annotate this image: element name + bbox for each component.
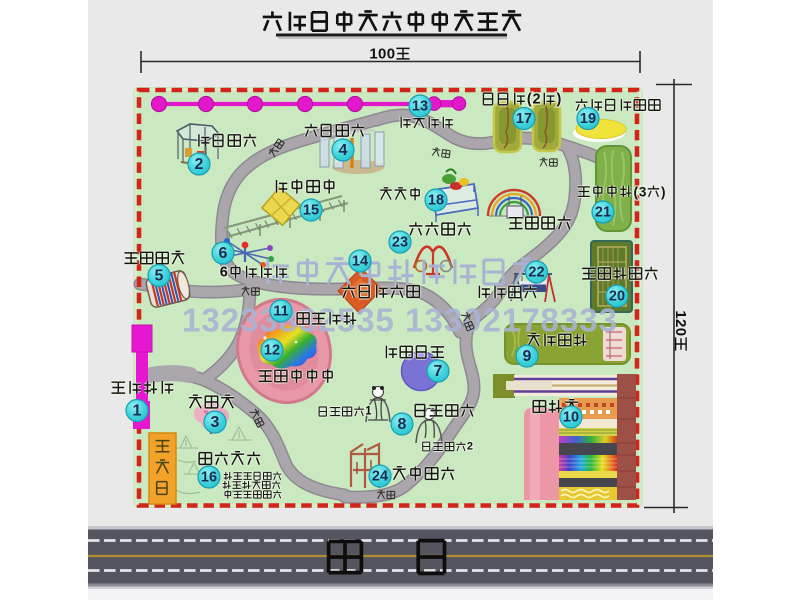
svg-text:22: 22 (528, 265, 544, 281)
svg-text:15: 15 (303, 203, 319, 219)
svg-text:20: 20 (609, 289, 625, 305)
svg-text:2: 2 (467, 441, 473, 453)
svg-text:1: 1 (369, 45, 377, 62)
svg-text:13: 13 (412, 99, 428, 115)
svg-text:2: 2 (672, 319, 689, 327)
svg-text:23: 23 (392, 235, 408, 251)
svg-text:2: 2 (195, 156, 204, 173)
svg-text:16: 16 (201, 470, 217, 486)
svg-text:7: 7 (434, 363, 443, 380)
svg-text:13233832535 13302178333: 13233832535 13302178333 (182, 302, 618, 339)
svg-text:0: 0 (672, 328, 689, 336)
svg-text:24: 24 (372, 469, 388, 485)
svg-text:0: 0 (387, 45, 395, 62)
svg-text:3: 3 (639, 184, 647, 199)
svg-text:1: 1 (133, 403, 142, 420)
svg-text:3: 3 (211, 414, 220, 431)
svg-text:6: 6 (220, 264, 228, 280)
svg-text:2: 2 (533, 91, 541, 107)
svg-text:14: 14 (352, 254, 368, 270)
svg-text:(: ( (634, 184, 639, 199)
svg-text:9: 9 (523, 348, 532, 365)
svg-text:1: 1 (365, 406, 372, 418)
svg-text:5: 5 (155, 268, 164, 285)
svg-text:21: 21 (595, 205, 611, 221)
svg-text:18: 18 (428, 193, 444, 209)
svg-text:10: 10 (563, 410, 579, 426)
svg-text:1: 1 (672, 310, 689, 318)
svg-text:8: 8 (398, 416, 407, 433)
svg-text:4: 4 (339, 142, 348, 159)
svg-text:11: 11 (273, 304, 288, 320)
svg-text:17: 17 (516, 111, 532, 127)
svg-text:): ) (556, 91, 561, 107)
svg-text:6: 6 (219, 245, 228, 262)
svg-text:0: 0 (378, 45, 386, 62)
svg-text:): ) (661, 184, 666, 199)
svg-text:12: 12 (264, 343, 280, 359)
svg-text:(: ( (527, 91, 532, 107)
svg-text:19: 19 (580, 111, 596, 127)
